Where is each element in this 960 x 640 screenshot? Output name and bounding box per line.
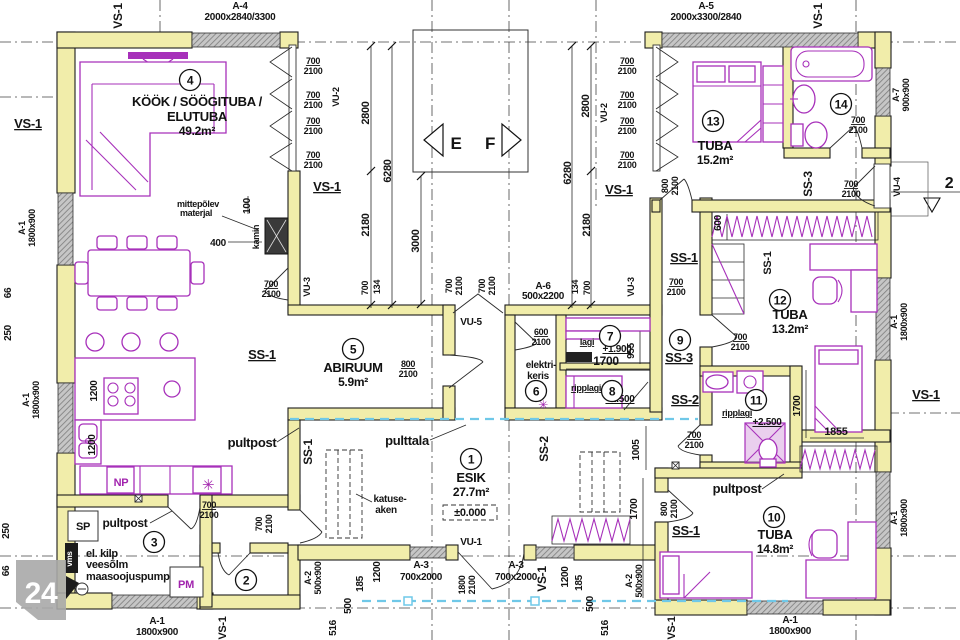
plan-label: SS-3	[665, 350, 693, 365]
plan-label: 1800x900	[899, 303, 909, 341]
plan-label: VS-1	[14, 116, 42, 131]
plan-label: 2800	[360, 101, 372, 124]
plan-label: VS-1	[912, 387, 940, 402]
sauna-heater-icon	[566, 352, 592, 362]
kitchen-island	[75, 333, 195, 420]
plan-label: A-1	[889, 315, 899, 329]
wardrobe-room10	[800, 446, 877, 472]
room-name: ESIK	[456, 470, 486, 485]
plan-label: 1800x900	[27, 209, 37, 247]
plan-label: 2100	[618, 160, 637, 170]
plan-label: 100	[242, 197, 253, 214]
plan-label: SS-1	[248, 347, 276, 362]
plan-label: 1200	[89, 380, 100, 402]
room-area: 49.2m²	[179, 124, 216, 138]
plan-label: VS-1	[811, 3, 825, 29]
plan-label: 2100	[304, 66, 323, 76]
plan-label: A-1	[889, 511, 899, 525]
section-arrow-e-icon	[424, 124, 443, 156]
plan-label: ±0.000	[454, 507, 486, 519]
plan-label: 250	[1, 522, 12, 539]
plan-label: 1800x900	[769, 626, 812, 637]
room-number: 9	[677, 334, 684, 348]
room-number: 4	[187, 74, 194, 88]
plan-label: 1700	[792, 395, 803, 417]
window-a3-right	[536, 547, 574, 558]
room-number: 7	[607, 330, 614, 344]
plan-label: 1700	[629, 498, 640, 520]
plan-label: A-2	[624, 574, 634, 588]
plan-label: 2100	[454, 276, 464, 295]
toilet-icon	[791, 122, 827, 148]
room-name: ELUTUBA	[167, 109, 228, 124]
plan-label: A-4	[232, 1, 248, 12]
plan-label: VS-1	[666, 616, 678, 639]
roof-window-right	[580, 452, 620, 512]
window-a1-left-lower	[58, 383, 73, 453]
plan-label: aken	[375, 505, 397, 516]
plan-label: A-2	[303, 571, 313, 585]
plan-label: A-1	[149, 616, 165, 627]
plan-label: NP	[114, 477, 129, 489]
window-a7	[876, 68, 890, 116]
plan-label: 955	[626, 342, 637, 359]
plan-label: 2100	[200, 510, 219, 520]
plan-label: 1200	[87, 434, 98, 456]
stool-icon	[160, 333, 178, 351]
room-number: 5	[350, 343, 357, 357]
plan-label: VS-1	[111, 3, 125, 29]
plan-label: VS-1	[605, 182, 633, 197]
door-vu4	[874, 164, 890, 208]
chair-room10	[809, 530, 837, 558]
window-a3-left	[410, 547, 446, 558]
fireplace-icon	[265, 218, 288, 254]
chair-room12	[813, 277, 842, 304]
plan-label: 1700	[593, 354, 619, 368]
plan-label: ripplagi	[571, 383, 601, 393]
plan-label: 700	[477, 279, 487, 293]
plan-label: SS-1	[672, 523, 700, 538]
plan-label: 700	[306, 90, 320, 100]
room-number: 13	[707, 115, 720, 129]
plan-label: 600	[534, 327, 548, 337]
plan-label: 900x900	[901, 78, 911, 111]
room-number: 10	[768, 511, 781, 525]
room-number: 8	[609, 385, 616, 399]
room-name: TUBA	[773, 307, 809, 322]
plan-label: 500	[585, 595, 596, 612]
plan-label: 700	[844, 179, 858, 189]
plan-label: 800	[659, 502, 669, 516]
plan-label: ✳	[202, 477, 214, 494]
plan-label: 2100	[618, 100, 637, 110]
plan-label: 700	[620, 56, 634, 66]
plan-label: 66	[1, 565, 12, 576]
bed-room10	[660, 552, 752, 598]
room-area: 14.8m²	[757, 542, 794, 556]
closet-room12	[712, 212, 878, 240]
plan-label: 2100	[842, 189, 861, 199]
window-a5	[662, 33, 858, 47]
plan-label: A-1	[17, 221, 27, 235]
plan-label: VU-3	[302, 277, 312, 297]
plan-label: VU-2	[331, 87, 341, 107]
plan-label: VU-3	[626, 277, 636, 297]
plan-label: 516	[328, 619, 339, 636]
plan-label: 700	[582, 281, 592, 295]
plan-label: VS-1	[535, 566, 549, 592]
plan-label: 2100	[849, 125, 868, 135]
plan-label: 500x2200	[522, 291, 565, 302]
plan-label: 700	[620, 116, 634, 126]
plan-label: 700	[254, 517, 264, 531]
plan-label: 2100	[670, 176, 680, 195]
plan-label: 2100	[532, 337, 551, 347]
plan-label: 700x2000	[400, 572, 443, 583]
plan-label: 3000	[410, 229, 422, 252]
plan-label: veesõlm	[86, 559, 128, 571]
plan-label: 700	[306, 56, 320, 66]
plan-label: 1800x900	[899, 499, 909, 537]
plan-label: 2180	[581, 213, 593, 236]
shelf-room13	[763, 66, 783, 142]
room-name: ABIRUUM	[323, 360, 382, 375]
section-ef-box	[413, 30, 528, 172]
plan-label: 1005	[631, 439, 642, 461]
bathtub-icon	[791, 47, 872, 81]
dining-table	[75, 236, 204, 310]
plan-label: VU-4	[892, 177, 902, 197]
plan-label: katuse-	[374, 494, 407, 505]
plan-label: 185	[574, 574, 585, 591]
plan-label: 1800x900	[136, 627, 179, 638]
plan-label: SS-2	[671, 392, 699, 407]
plan-label: 700	[733, 332, 747, 342]
plan-label: 1855	[824, 426, 847, 438]
plan-label: 2100	[399, 369, 418, 379]
plan-label: 1800x900	[31, 381, 41, 419]
plan-label: VU-1	[460, 537, 482, 548]
plan-label: vms	[65, 551, 74, 567]
plan-label: 185	[355, 575, 366, 592]
plan-label: 2100	[467, 575, 477, 594]
plan-label: 250	[3, 324, 14, 341]
plan-label: SP	[76, 521, 90, 533]
plan-label: E	[450, 134, 461, 153]
floor-plan: 24 VS-1A-42000x2840/3300A-52000x3300/284…	[0, 0, 960, 640]
plan-label: 700x2000	[495, 572, 538, 583]
plan-label: 2100	[304, 100, 323, 110]
room-area: 27.7m²	[453, 485, 490, 499]
plan-label: kamin	[251, 225, 261, 250]
plan-label: 400	[210, 238, 227, 249]
toilet-room11	[759, 439, 777, 467]
wardrobe-room12	[712, 244, 744, 314]
island-sink-icon	[164, 381, 180, 397]
plan-label: 2100	[487, 276, 497, 295]
plan-label: pultpost	[228, 435, 278, 450]
watermark-text: 24	[25, 577, 58, 610]
plan-label: lagi	[580, 337, 594, 347]
plan-label: A-1	[21, 393, 31, 407]
plan-label: 2100	[731, 342, 750, 352]
plan-label: 1200	[372, 561, 383, 583]
plan-label: 1200	[560, 566, 571, 588]
plan-label: SS-1	[670, 250, 698, 265]
window-a1-right-upper	[876, 278, 890, 360]
room-number: 6	[533, 385, 540, 399]
plan-label: A-3	[508, 560, 524, 571]
plan-label: elektri-	[526, 360, 556, 371]
plan-label: SS-2	[537, 436, 551, 462]
plan-label: A-3	[413, 560, 429, 571]
window-a4	[192, 33, 280, 47]
plan-label: pulttala	[385, 433, 430, 448]
bed-room13	[693, 62, 761, 142]
section-arrow-f-icon	[502, 124, 521, 156]
plan-label: 700	[264, 279, 278, 289]
stool-icon	[86, 333, 104, 351]
plan-label: 700	[620, 150, 634, 160]
plan-label: ripplagi	[722, 408, 752, 418]
plan-label: 700	[360, 281, 370, 295]
plan-label: VU-5	[460, 317, 482, 328]
room-number: 1	[468, 453, 475, 467]
window-a1-right-lower	[876, 472, 890, 548]
plan-label: 2000x3300/2840	[671, 12, 743, 23]
room-number: 2	[243, 574, 250, 588]
plan-label: A-7	[891, 88, 901, 102]
room-area: 13.2m²	[772, 322, 809, 336]
plan-label: 600	[713, 214, 724, 231]
plan-label: 700	[620, 90, 634, 100]
plan-label: 2100	[304, 126, 323, 136]
bed-room12	[815, 346, 862, 432]
plan-label: 800	[660, 179, 670, 193]
plan-label: 500x900	[634, 564, 644, 597]
plan-label: 2100	[685, 440, 704, 450]
plan-label: VU-2	[599, 103, 609, 123]
plan-label: 2100	[669, 499, 679, 518]
plan-label: 134	[372, 280, 382, 294]
plan-label: 2100	[667, 287, 686, 297]
bathroom-sink-icon	[790, 85, 815, 113]
plan-label: 2000x2840/3300	[205, 12, 277, 23]
plan-label: 700	[669, 277, 683, 287]
room-name: TUBA	[758, 527, 794, 542]
plan-label: 700	[306, 150, 320, 160]
plan-label: 2100	[304, 160, 323, 170]
plan-label: 6280	[382, 159, 394, 182]
plan-label: SS-1	[762, 251, 774, 274]
plan-label: SS-3	[801, 171, 815, 197]
plan-label: +2.500	[752, 417, 782, 428]
plan-label: PM	[178, 579, 194, 591]
plan-label: 2100	[264, 514, 274, 533]
room-area: 5.9m²	[338, 375, 368, 389]
wardrobe-esik	[552, 516, 630, 544]
plan-label: 66	[3, 287, 14, 298]
plan-label: materjal	[180, 208, 212, 218]
plan-label: 700	[202, 500, 216, 510]
watermark: 24	[16, 560, 66, 620]
room-area: 15.2m²	[697, 153, 734, 167]
room-number: 11	[750, 394, 763, 408]
plan-label: 2800	[580, 94, 592, 117]
plan-label: maasoojuspump	[86, 571, 170, 583]
room-number: 12	[774, 294, 787, 308]
plan-label: F	[485, 134, 495, 153]
plan-label: VS-1	[313, 179, 341, 194]
plan-label: pultpost	[103, 516, 148, 530]
plan-label: 700	[687, 430, 701, 440]
plan-label: A-5	[698, 1, 714, 12]
plan-label: 500	[343, 597, 354, 614]
room-number: 14	[835, 98, 848, 112]
plan-label: 1800	[457, 575, 467, 594]
window-a1-bottom-right	[747, 601, 823, 614]
plan-label: 2100	[262, 289, 281, 299]
plan-label: 6280	[562, 161, 574, 184]
plan-label: SS-1	[301, 439, 315, 465]
room-name: KÖÖK / SÖÖGITUBA /	[132, 94, 263, 109]
plan-label: 134	[570, 280, 580, 294]
floor-plan-drawing: 24 VS-1A-42000x2840/3300A-52000x3300/284…	[0, 0, 960, 640]
window-a1-left-upper	[58, 193, 73, 265]
plan-label: 700	[851, 115, 865, 125]
plan-label: 516	[600, 619, 611, 636]
plan-label: pultpost	[713, 481, 763, 496]
plan-label: 500x900	[313, 561, 323, 594]
plan-label: 2100	[618, 126, 637, 136]
plan-label: 700	[306, 116, 320, 126]
sink-room11	[703, 372, 733, 392]
stool-icon	[122, 333, 140, 351]
plan-label: 700	[444, 279, 454, 293]
plan-label: 2	[945, 175, 954, 192]
plan-label: VS-1	[217, 616, 229, 639]
plan-label: A-1	[782, 615, 798, 626]
plan-label: 800	[401, 359, 415, 369]
plan-label: 2180	[360, 213, 372, 236]
plan-label: 2100	[618, 66, 637, 76]
room-name: TUBA	[698, 138, 734, 153]
room-number: 3	[151, 536, 158, 550]
